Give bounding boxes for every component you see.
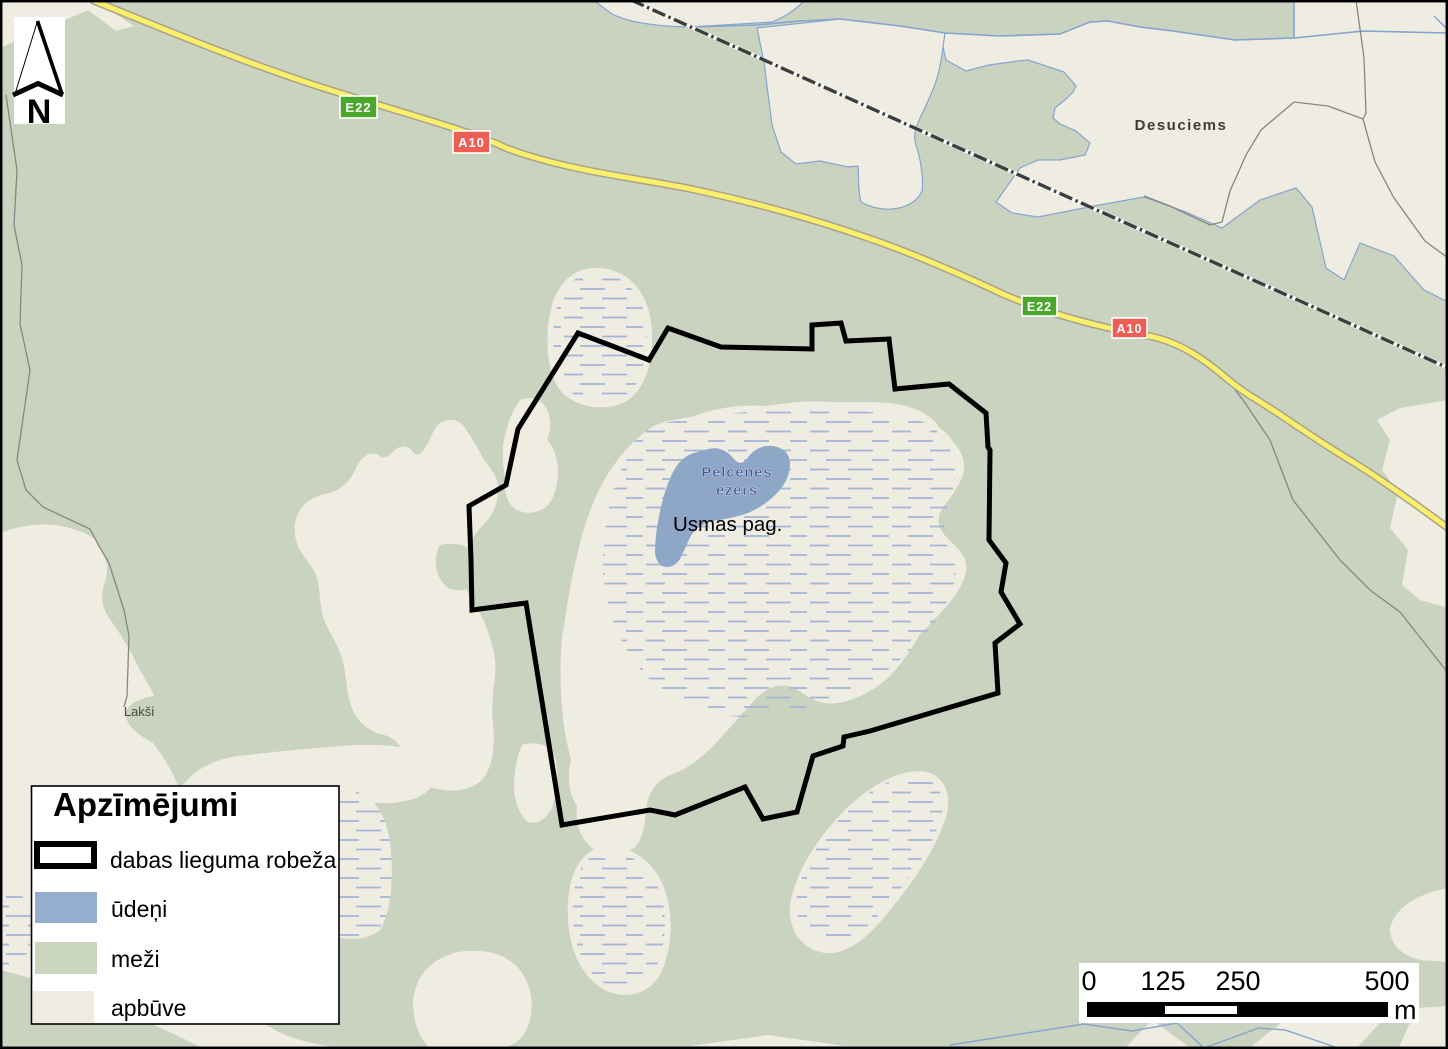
svg-text:E22: E22 [1027,300,1052,314]
svg-text:Usmas pag.: Usmas pag. [673,513,782,536]
svg-text:Apzīmējumi: Apzīmējumi [53,786,238,823]
svg-text:0: 0 [1081,966,1096,996]
svg-text:500: 500 [1364,966,1409,996]
svg-text:A10: A10 [1117,322,1143,336]
svg-text:m: m [1394,995,1417,1025]
svg-text:dabas lieguma robeža: dabas lieguma robeža [110,847,337,873]
svg-text:apbūve: apbūve [111,995,186,1021]
svg-text:ezers: ezers [716,483,758,499]
svg-text:250: 250 [1215,966,1260,996]
svg-text:meži: meži [111,946,160,972]
svg-text:N: N [27,93,52,131]
svg-text:E22: E22 [345,100,371,115]
svg-text:A10: A10 [458,135,485,150]
svg-text:ūdeņi: ūdeņi [111,896,167,922]
svg-text:Desuciems: Desuciems [1135,117,1228,134]
svg-text:Lakši: Lakši [124,704,154,719]
svg-text:125: 125 [1140,966,1185,996]
svg-text:Pelcenes: Pelcenes [702,465,773,481]
